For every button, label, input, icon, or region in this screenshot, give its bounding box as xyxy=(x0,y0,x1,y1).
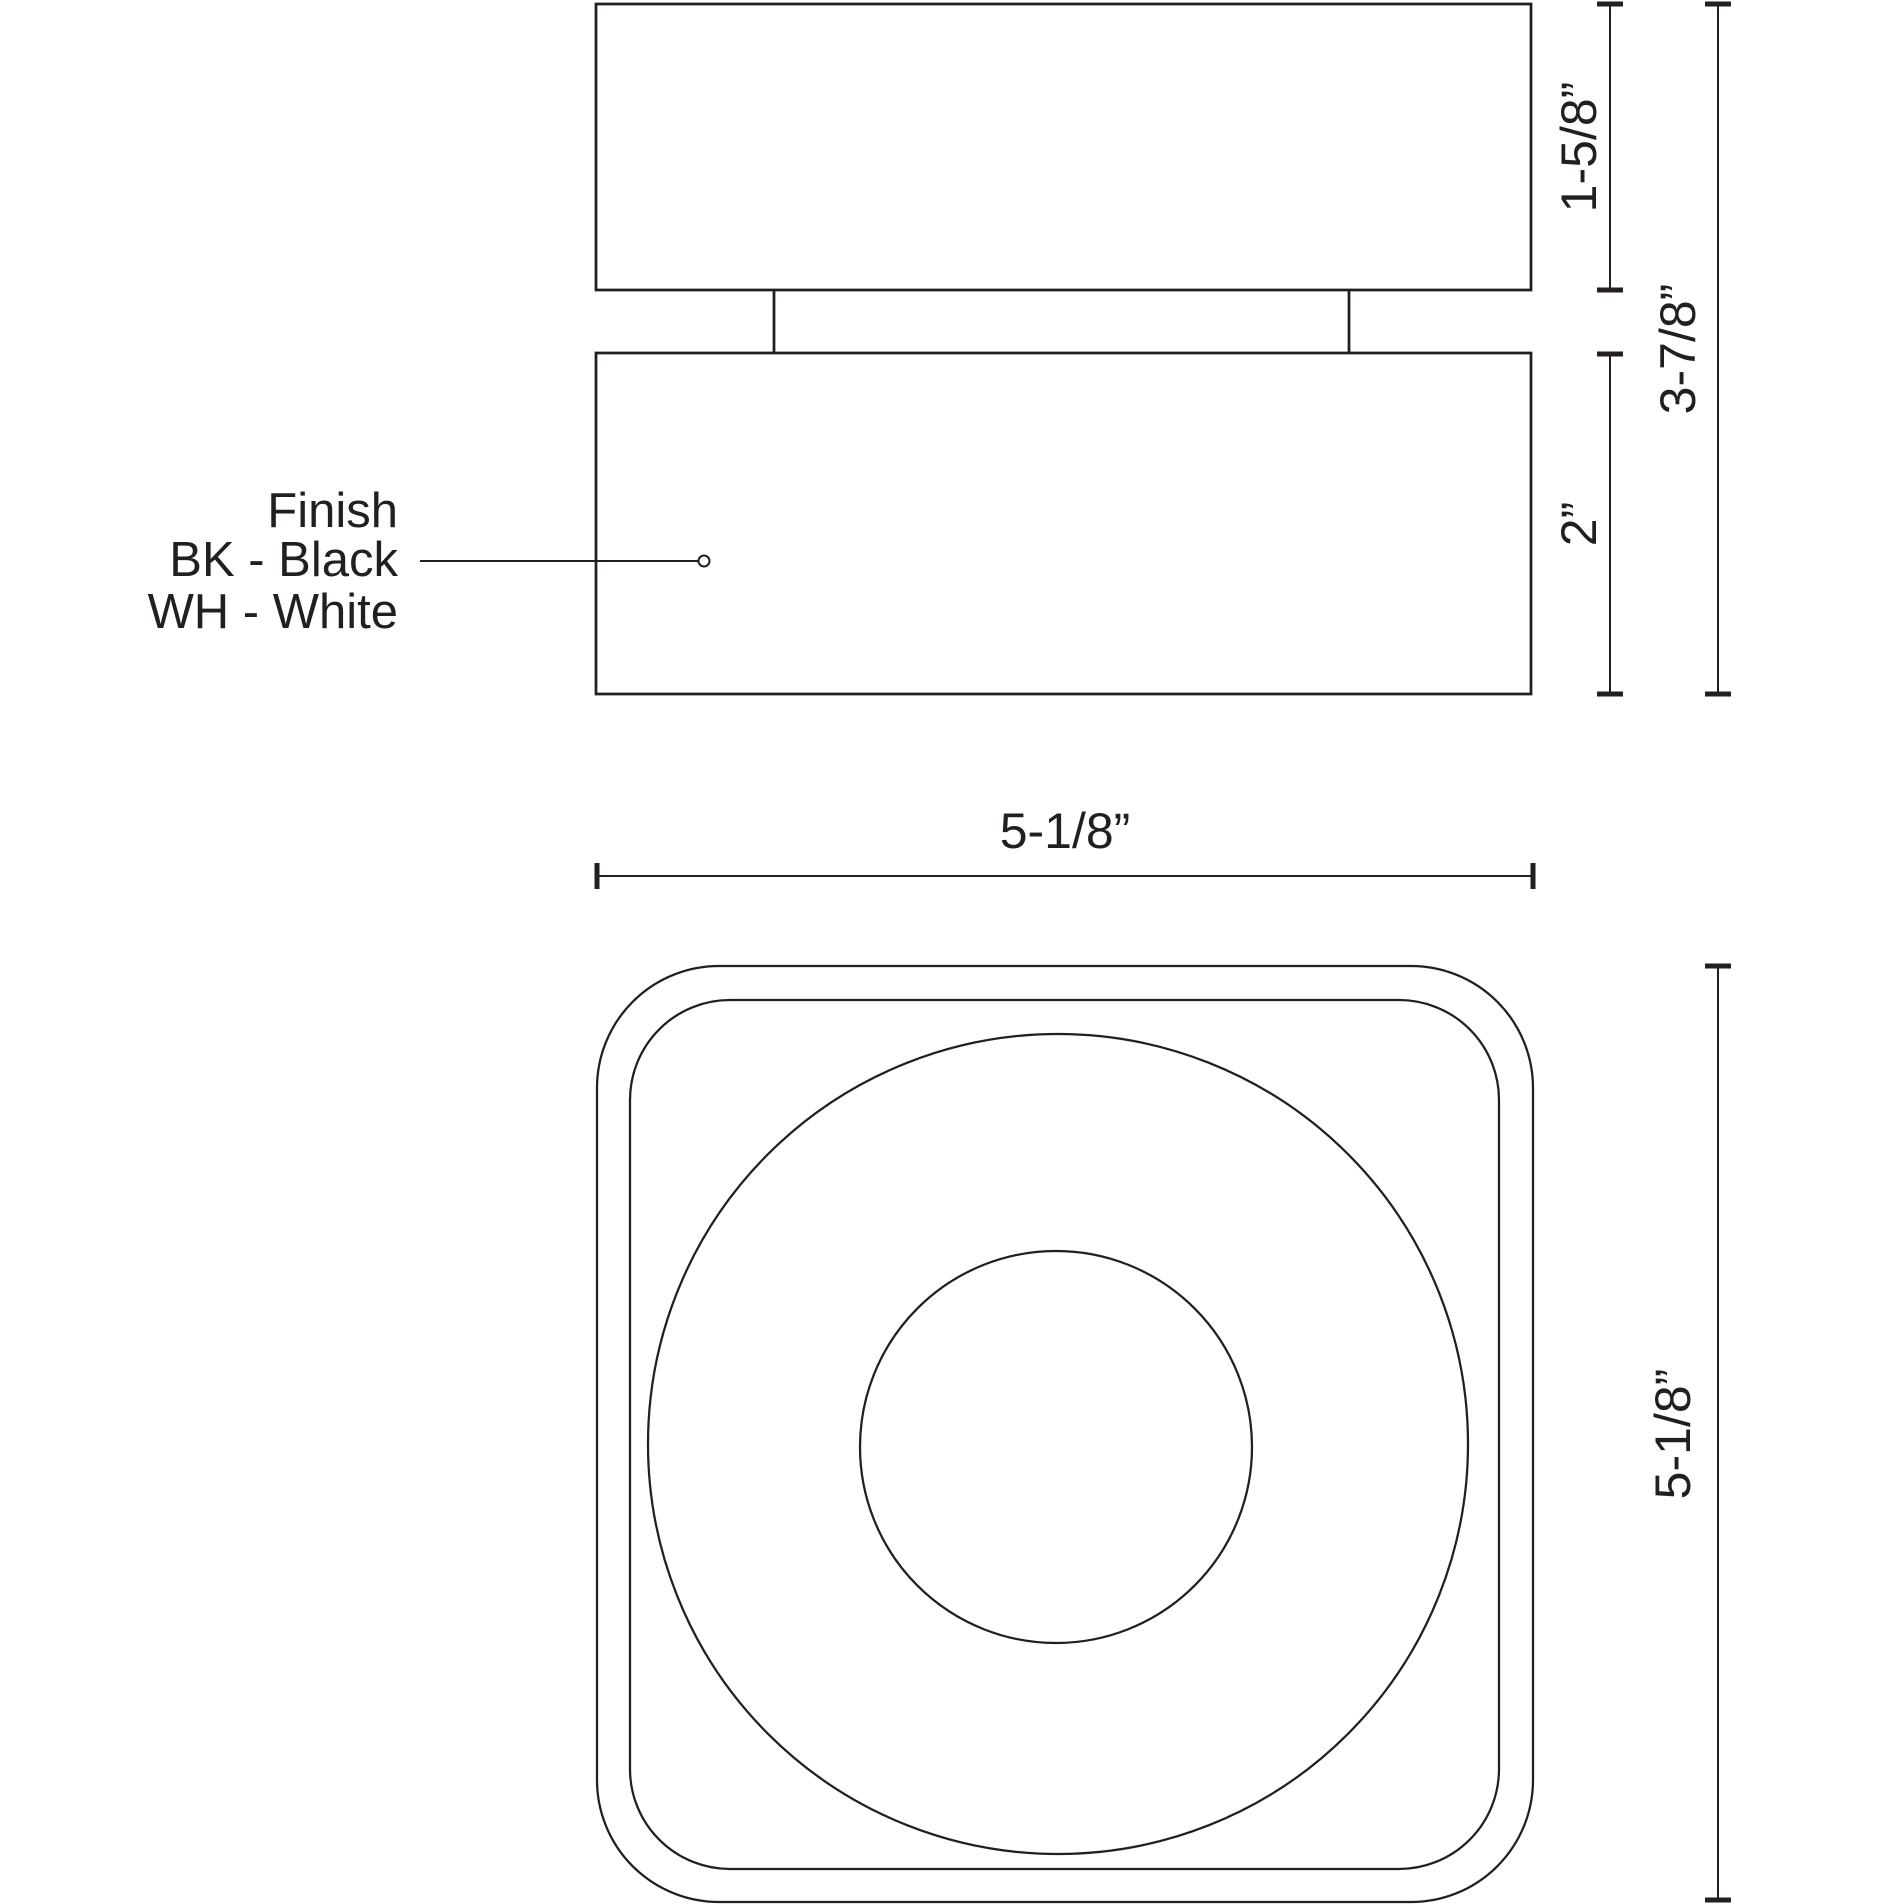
top-view-outer-circle xyxy=(648,1034,1468,1854)
finish-note-leader-dot xyxy=(699,556,710,567)
finish-note-option-black: BK - Black xyxy=(169,533,398,587)
dimension-bottom-height-label: 2” xyxy=(1551,502,1607,546)
dimension-total-height: 3-7/8” xyxy=(1650,4,1731,694)
top-view-inner-rounded-square xyxy=(630,1000,1499,1869)
side-view: 1-5/8” 2” 3-7/8” Finish BK - Black WH - xyxy=(148,4,1731,694)
finish-note-title: Finish xyxy=(267,484,398,538)
spec-sheet-canvas: 1-5/8” 2” 3-7/8” Finish BK - Black WH - xyxy=(0,0,1904,1904)
dimension-top-height: 1-5/8” xyxy=(1551,4,1623,290)
dimension-drawing: 1-5/8” 2” 3-7/8” Finish BK - Black WH - xyxy=(0,0,1904,1904)
side-view-top-slab-outline xyxy=(596,4,1531,290)
dimension-depth-label: 5-1/8” xyxy=(1645,1369,1701,1500)
dimension-width-label: 5-1/8” xyxy=(1000,803,1131,859)
dimension-top-height-label: 1-5/8” xyxy=(1551,82,1607,213)
dimension-width: 5-1/8” xyxy=(597,803,1533,889)
top-view-inner-circle xyxy=(860,1251,1252,1643)
side-view-bottom-slab-outline xyxy=(596,353,1531,694)
dimension-depth: 5-1/8” xyxy=(1645,966,1731,1900)
dimension-total-height-label: 3-7/8” xyxy=(1650,284,1706,415)
finish-note: Finish BK - Black WH - White xyxy=(148,484,710,639)
top-view: 5-1/8” 5-1/8” xyxy=(597,803,1731,1902)
finish-note-option-white: WH - White xyxy=(148,585,398,639)
dimension-bottom-height: 2” xyxy=(1551,354,1623,694)
top-view-outer-rounded-square xyxy=(597,966,1533,1902)
